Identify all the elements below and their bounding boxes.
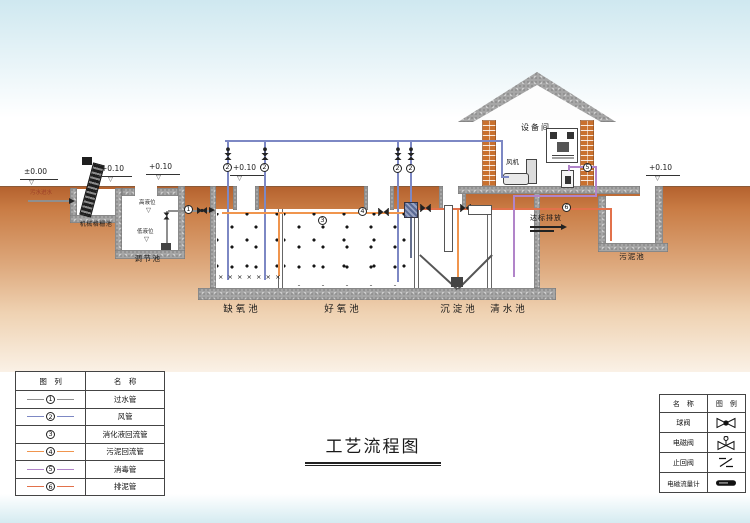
valve-icon (163, 212, 170, 220)
sky (0, 0, 750, 118)
inlet-arrow (69, 198, 75, 204)
pipe-legend-row: 4 污泥回流管 (16, 443, 165, 461)
anoxic-diffuser-row: × × × × × × × (218, 274, 282, 281)
regulating-tank-opening (135, 186, 157, 197)
legend-name: 排泥管 (86, 478, 165, 496)
airlift-down-pipe (410, 218, 412, 258)
sludge-tank-interior (606, 196, 655, 244)
sludge-tank-notch (640, 186, 655, 197)
discharge-arrow-head (561, 224, 567, 230)
legend-name: 过水管 (86, 391, 165, 409)
level-10-line (646, 175, 680, 176)
air-pipe-marker: 2 (393, 164, 402, 173)
discharge-arrow-line (530, 226, 562, 228)
level-10-label: +0.10 (149, 162, 172, 171)
water-pipe-marker: 1 (184, 205, 193, 214)
cabinet-vents (552, 155, 574, 160)
valve-legend-col-symbol: 图 例 (707, 395, 745, 413)
circled-number: 3 (46, 430, 55, 439)
ball-valve-icon (196, 206, 208, 215)
circled-number: 2 (46, 412, 55, 421)
disinfection-device (561, 170, 574, 188)
disinfect-pipe-v2 (513, 195, 515, 277)
valve-legend-col-name: 名 称 (660, 395, 708, 413)
bottom-tint (0, 494, 750, 523)
circled-number: 6 (46, 482, 55, 491)
pipe-legend-row: 3 消化液回流管 (16, 426, 165, 444)
control-cabinet (546, 128, 578, 163)
level-zero-line (20, 179, 58, 180)
recirculation-drop-pipe (278, 214, 280, 276)
valve-name: 电磁阀 (660, 433, 708, 453)
sed-effluent-weir (468, 205, 492, 215)
legend-line (27, 416, 44, 417)
cabinet-core (557, 142, 569, 152)
cabinet-indicator-left (550, 132, 557, 139)
legend-line (57, 416, 74, 417)
pipe-legend-col-symbol: 图 列 (16, 372, 86, 391)
legend-name: 风管 (86, 408, 165, 426)
air-pipe-marker: 2 (223, 163, 232, 172)
title-underline-1 (305, 462, 441, 464)
valve-legend-row: 止回阀 (660, 453, 746, 473)
legend-line (57, 451, 74, 452)
aerobic-media-dots (284, 213, 413, 286)
main-tank-wall-left (210, 186, 216, 288)
valve-name: 止回阀 (660, 453, 708, 473)
discharge-arrow-line2 (530, 230, 554, 232)
valve-legend-header: 名 称 图 例 (660, 395, 746, 413)
valve-name: 球阀 (660, 413, 708, 433)
main-tank-slab (198, 288, 556, 300)
pipe-legend-row: 2 风管 (16, 408, 165, 426)
tank-opening-1 (237, 186, 255, 210)
solenoid-valve-icon (715, 435, 737, 451)
process-flow-diagram: 设备间 风机 2 2 2 2 1 污水进水 4 3 6 (0, 0, 750, 523)
disinfect-pipe-marker: 5 (583, 163, 592, 172)
opening-curb (390, 186, 394, 210)
valve-legend-row: 球阀 (660, 413, 746, 433)
sludge-riser-pipe (457, 210, 459, 279)
pipe-legend-table: 图 列 名 称 1 过水管 2 风管 3 消化液回流管 4 污泥回流管 5 消毒… (15, 371, 165, 496)
pipe-legend-col-name: 名 称 (86, 372, 165, 391)
pipe-legend-row: 1 过水管 (16, 391, 165, 409)
legend-line (27, 469, 44, 470)
inlet-pipe (28, 200, 70, 202)
valve-legend-row: 电磁流量计 (660, 473, 746, 493)
sludge-tank-label: 污泥池 (612, 253, 652, 261)
legend-line (27, 486, 44, 487)
valve-legend-table: 名 称 图 例 球阀 电磁阀 止回阀 电磁流量计 (659, 394, 746, 493)
legend-line (27, 451, 44, 452)
level-10-line (146, 174, 180, 175)
legend-line (57, 399, 74, 400)
opening-curb (255, 186, 259, 210)
sludge-drain-marker: 6 (562, 203, 571, 212)
partition-aerobic-sedimentation (414, 209, 419, 288)
air-manifold-pipe (225, 140, 503, 142)
flow-arrow (209, 207, 215, 213)
circled-number: 5 (46, 465, 55, 474)
air-pipe-marker: 2 (406, 164, 415, 173)
level-10-label: +0.10 (649, 163, 672, 172)
legend-line (57, 469, 74, 470)
sed-feed-channel (444, 205, 453, 252)
level-10-mark: ▽ (237, 175, 242, 182)
opening-curb (233, 186, 237, 210)
flow-meter-icon (714, 478, 738, 488)
legend-name: 消毒管 (86, 461, 165, 479)
regulating-tank-pump (161, 243, 171, 250)
level-10-mark: ▽ (156, 174, 161, 181)
legend-line (57, 486, 74, 487)
regulating-tank-wall-right (178, 186, 185, 258)
regulating-tank-cover-left (122, 188, 135, 196)
circled-number: 4 (46, 447, 55, 456)
opening-curb (439, 186, 443, 210)
air-riser-pipe (501, 140, 503, 178)
aerobic-tank-label: 好氧池 (318, 305, 368, 315)
sludge-tank-slab (598, 243, 668, 252)
solenoid-valve-icon (393, 147, 403, 161)
regulating-tank-cover-right (157, 188, 178, 196)
ball-valve-icon (715, 417, 737, 429)
level-10-line (98, 176, 132, 177)
sed-sludge-pump (451, 277, 463, 287)
regulating-tank-label: 调节池 (129, 255, 167, 263)
discharge-label: 达标排放 (530, 215, 562, 223)
title-underline-2 (305, 465, 441, 466)
legend-name: 污泥回流管 (86, 443, 165, 461)
solenoid-valve-icon (406, 147, 416, 161)
page-title: 工艺流程图 (300, 438, 446, 457)
opening-curb (364, 186, 368, 210)
wall-column-left (482, 120, 496, 186)
legend-name: 消化液回流管 (86, 426, 165, 444)
building-floor (458, 186, 640, 194)
legend-line (27, 399, 44, 400)
inlet-label: 污水进水 (30, 190, 52, 196)
clear-water-tank-label: 清水池 (484, 305, 534, 315)
valve-name: 电磁流量计 (660, 473, 708, 493)
level-zero-label: ±0.00 (24, 167, 47, 176)
pipe-legend-row: 5 消毒管 (16, 461, 165, 479)
tank-opening-2 (368, 186, 390, 210)
level-10-mark: ▽ (108, 176, 113, 183)
solenoid-valve-icon (223, 147, 233, 161)
valve-legend-row: 电磁阀 (660, 433, 746, 453)
check-valve-icon (715, 456, 737, 469)
fan-label: 风机 (506, 159, 519, 166)
screen-tank-label: 机械格栅池 (72, 222, 120, 229)
pipe-legend-header: 图 列 名 称 (16, 372, 165, 391)
solenoid-valve-icon (260, 147, 270, 161)
level-10-line (230, 175, 264, 176)
ball-valve-icon (420, 204, 431, 212)
level-10-label: +0.10 (233, 163, 256, 172)
screen-motor (82, 157, 92, 165)
air-pipe-marker: 2 (260, 163, 269, 172)
sedimentation-tank-label: 沉淀池 (434, 305, 484, 315)
wall-column-right (580, 120, 594, 186)
main-tank-wall-right (534, 186, 540, 288)
disinfect-pipe-v1 (595, 166, 597, 197)
level-10-label: +0.10 (101, 164, 124, 173)
circled-number: 1 (46, 395, 55, 404)
blower-body (503, 173, 529, 185)
pipe-legend-row: 6 排泥管 (16, 478, 165, 496)
air-blower-stub (501, 176, 509, 178)
level-zero-mark: ▽ (29, 179, 34, 186)
low-level-mark: ▽ (144, 236, 149, 243)
level-10-mark: ▽ (655, 175, 660, 182)
high-level-mark: ▽ (146, 207, 151, 214)
sludge-drain-drop (610, 210, 612, 241)
anoxic-tank-label: 缺氧池 (217, 305, 267, 315)
airlift-pump (404, 202, 418, 218)
cabinet-indicator-right (567, 132, 574, 139)
disinfection-device-core (565, 176, 571, 184)
partition-sedimentation-clear (487, 209, 492, 288)
disinfect-pipe-h2 (513, 195, 597, 197)
